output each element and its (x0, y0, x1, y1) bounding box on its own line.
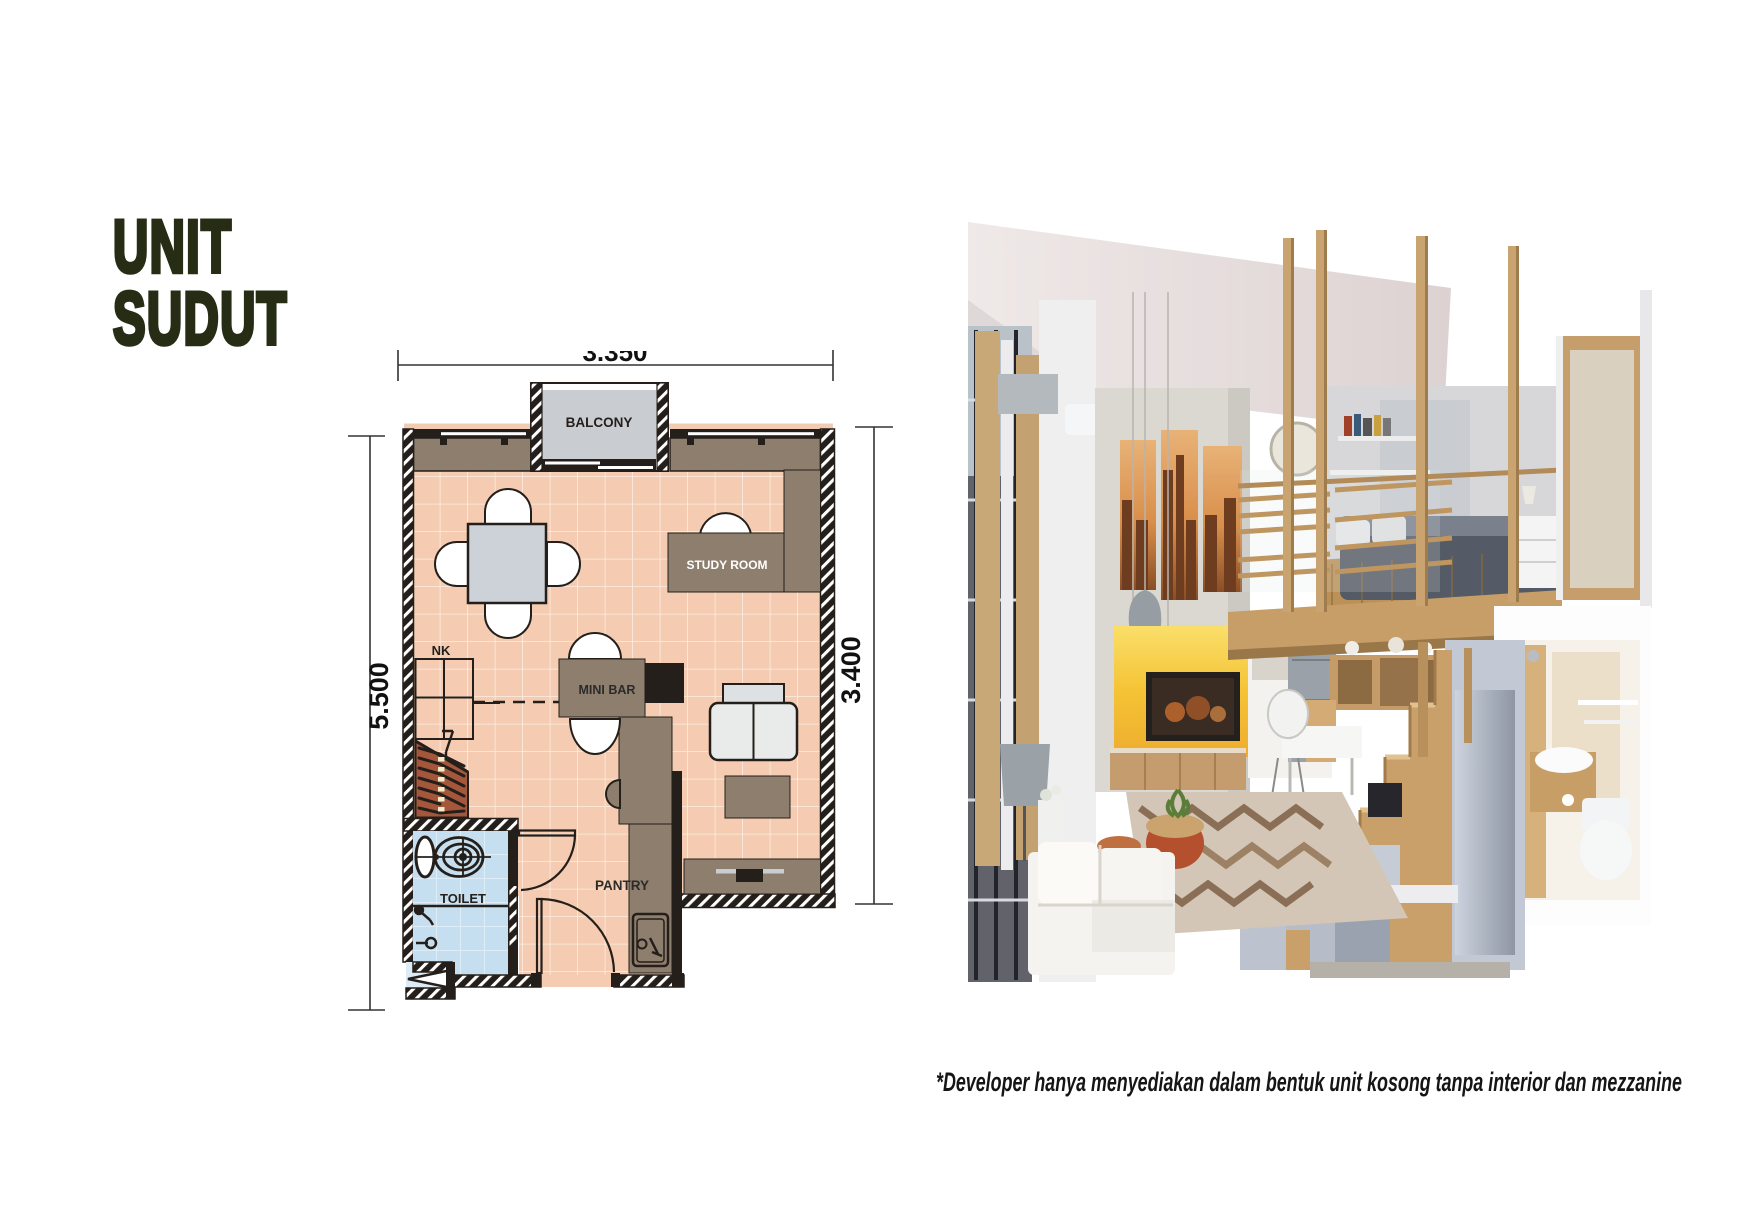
svg-text:PANTRY: PANTRY (595, 878, 649, 893)
svg-text:NK: NK (432, 643, 451, 658)
svg-text:STUDY ROOM: STUDY ROOM (686, 558, 767, 572)
svg-text:5.500: 5.500 (364, 662, 394, 730)
svg-text:3.350: 3.350 (582, 337, 647, 367)
svg-text:3.400: 3.400 (836, 636, 866, 704)
svg-text:BALCONY: BALCONY (566, 415, 633, 430)
svg-text:MINI BAR: MINI BAR (579, 683, 636, 697)
svg-text:TOILET: TOILET (440, 891, 486, 906)
